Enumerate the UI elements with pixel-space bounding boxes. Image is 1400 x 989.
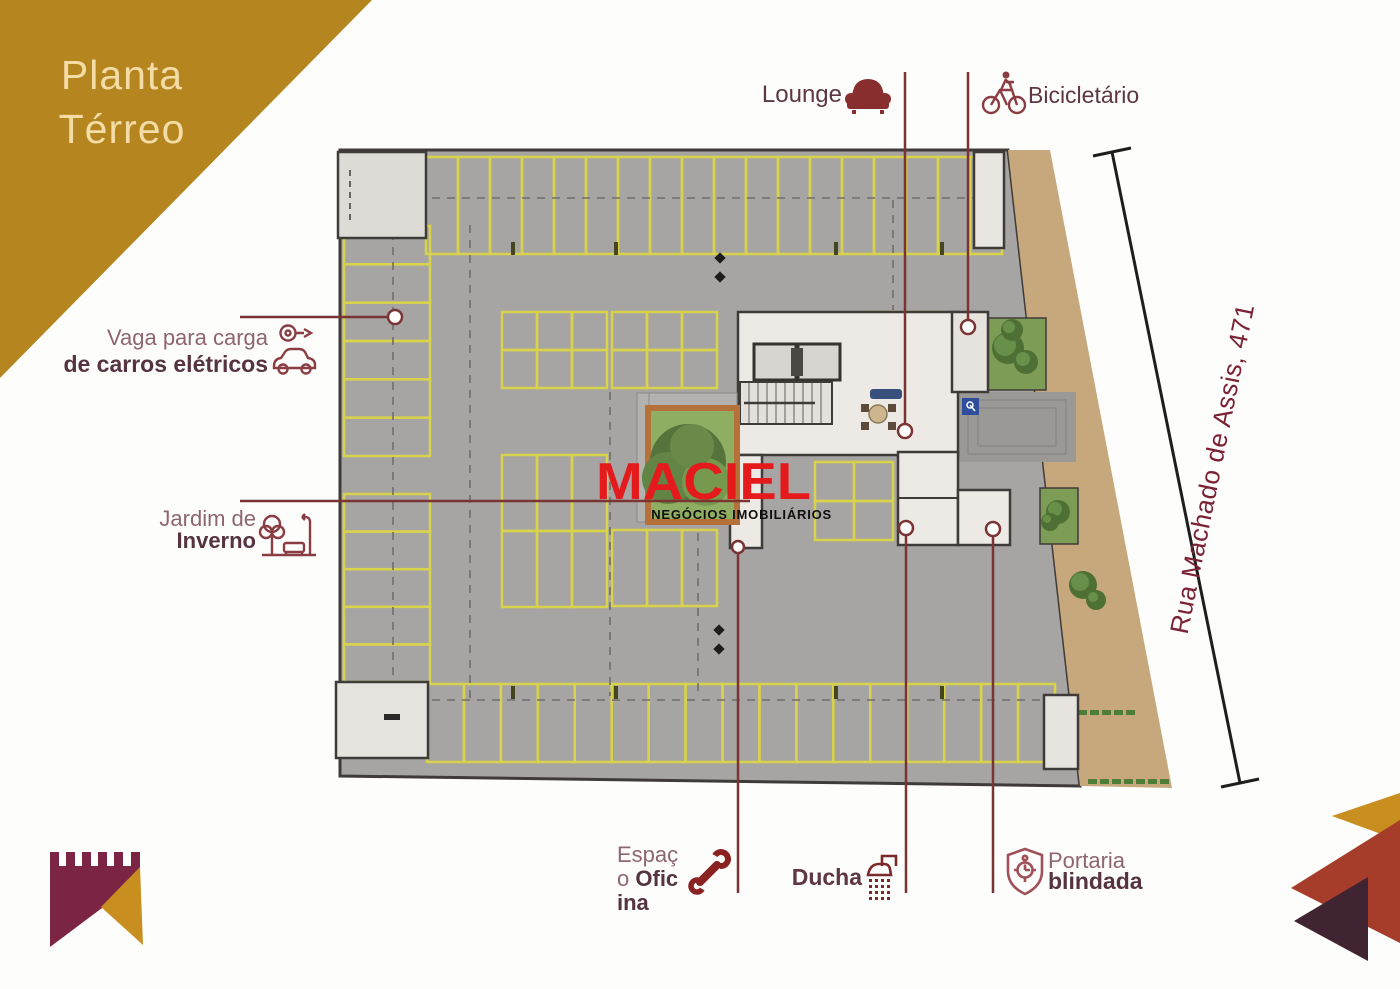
brand-banner-mark [50,852,143,947]
stairs [740,382,832,424]
sofa-icon [845,70,891,118]
bicycle-icon [980,66,1028,118]
palm-tree [1071,573,1089,591]
shower-icon [860,848,902,904]
corner-triangles [1291,793,1400,961]
bike-parking-label: Bicicletário [1028,82,1188,109]
upper-right-room [974,152,1004,248]
lower-left-room [336,682,428,758]
palm-tree [1041,513,1059,531]
page-title: Planta Térreo [26,48,218,156]
page-title-line2: Térreo [26,102,218,156]
hedge [1148,779,1157,784]
hedge [1114,710,1123,715]
hedge [1160,779,1169,784]
stall-tick [940,242,944,255]
palm-tree [1003,321,1015,333]
hedge [1102,710,1111,715]
lobby-room [958,490,1010,545]
stall-tick [614,242,618,255]
stall-tick [511,242,515,255]
shield-icon [1002,846,1048,898]
floor-plan-poster: Planta Térreo Lounge Bicicletário Vaga p… [0,0,1400,989]
ev-charging-label-line1: Vaga para carga [107,325,268,350]
palm-tree [1088,592,1098,602]
hedge [1100,779,1109,784]
wrench-icon [686,846,736,896]
palm-tree [1043,515,1051,523]
armored-lobby-label: Portaria blindada [1048,850,1168,892]
brand-logo-text: MACIEL [596,458,837,504]
ev-charging-label: Vaga para carga de carros elétricos [60,325,268,378]
workshop-label: Espaço Oficina [617,843,681,915]
shower-label: Ducha [790,864,862,891]
hedge [1126,710,1135,715]
hedge [1124,779,1133,784]
accessibility-symbol [962,398,979,415]
palm-tree [1016,352,1030,366]
brand-logo: MACIEL NEGÓCIOS IMOBILIÁRIOS [596,458,832,522]
stall-tick [940,686,944,699]
stall-tick [614,686,618,699]
hedge [1090,710,1099,715]
ev-charging-label-line2: de carros elétricos [63,351,268,377]
stall-tick [834,686,838,699]
ramp-room [338,152,426,238]
winter-garden-icon [258,510,320,560]
winter-garden-label: Jardim de Inverno [130,508,256,552]
winter-garden-label-line2: Inverno [177,528,256,553]
elevators [754,344,840,380]
driveway [1044,695,1078,769]
page-title-line1: Planta [26,48,218,102]
hedge [1112,779,1121,784]
hedge [1078,710,1087,715]
stall-tick [834,242,838,255]
hedge [1088,779,1097,784]
armored-lobby-label-line2: blindada [1048,868,1143,894]
hedge [1136,779,1145,784]
lounge-label: Lounge [760,81,842,109]
stall-tick [511,686,515,699]
electric-car-icon [268,322,320,380]
